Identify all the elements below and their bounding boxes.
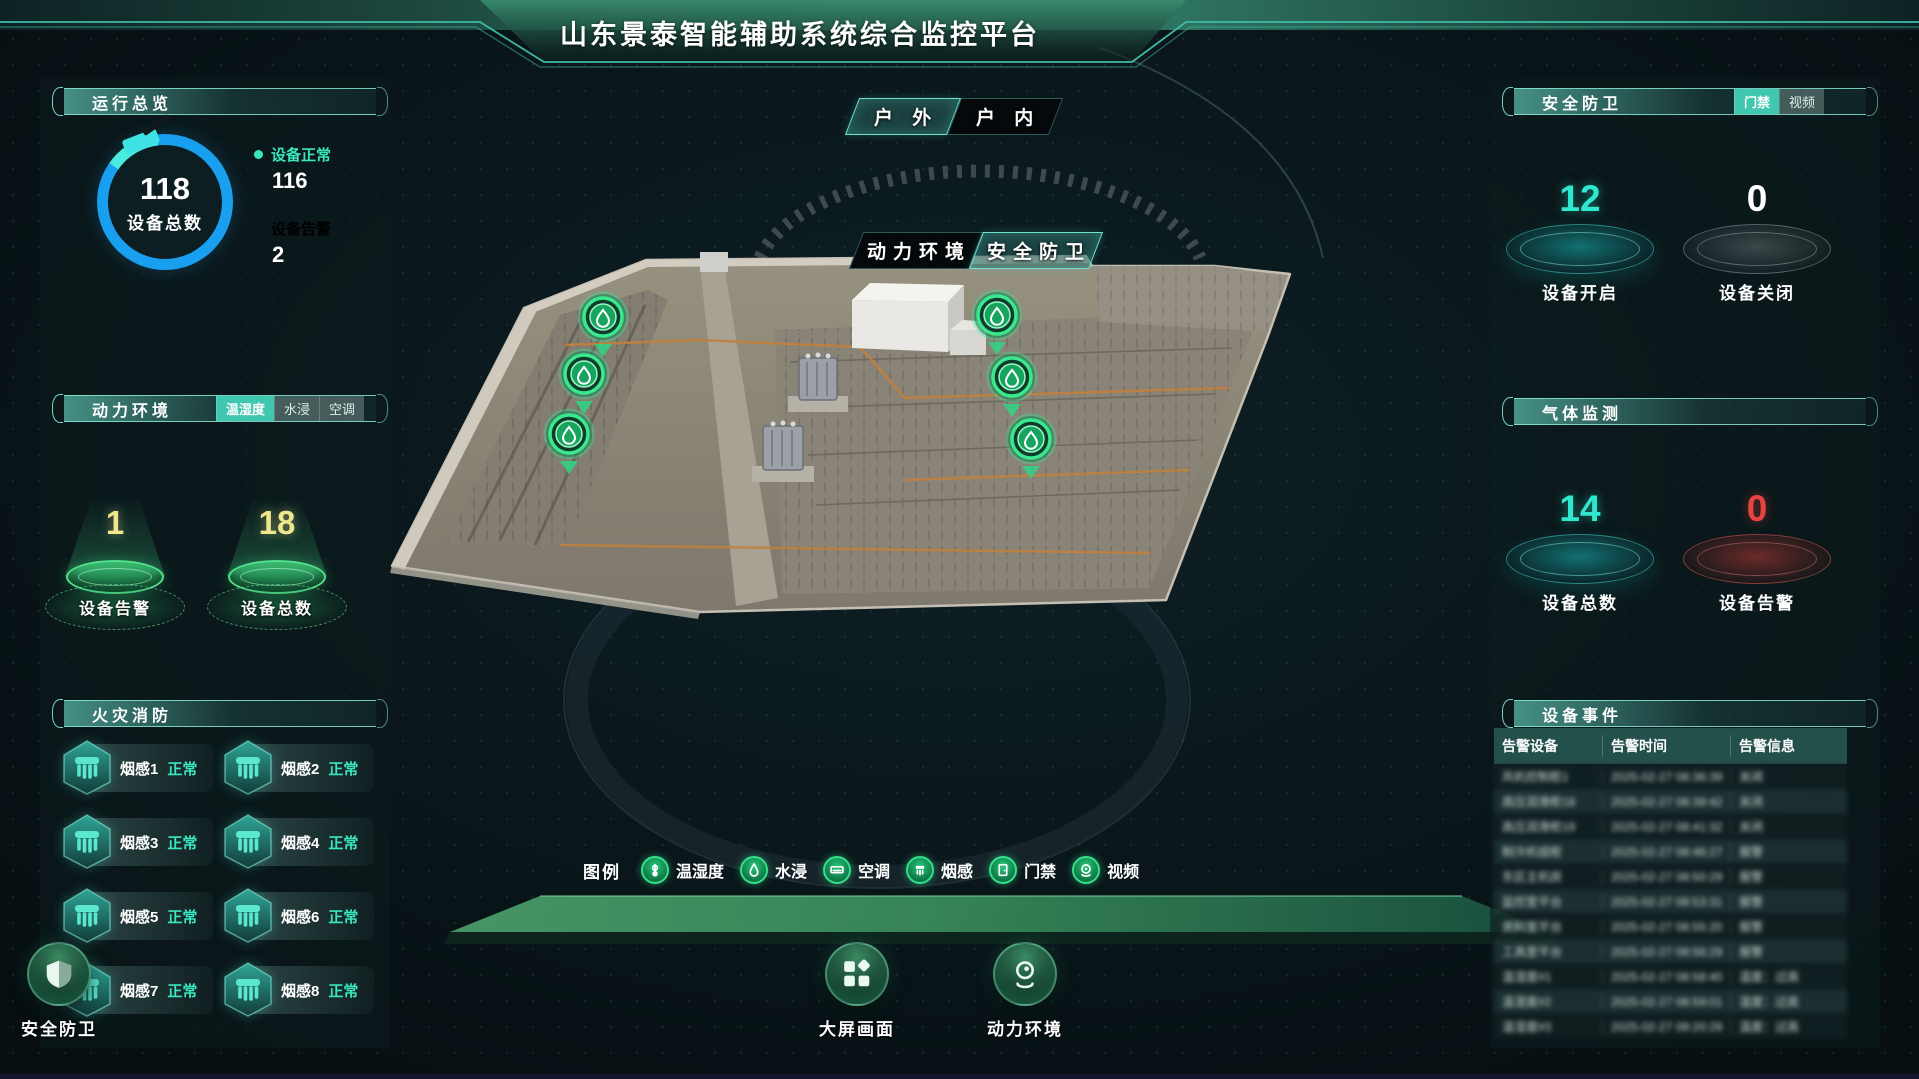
event-row[interactable]: 高压润滑柜19 2025-02-27 08:41:32 关闭 — [1494, 814, 1847, 839]
sensor-status: 正常 — [328, 906, 358, 927]
legend-items: 温湿度 — [641, 856, 1139, 884]
sensor-name: 烟感1 — [120, 758, 158, 779]
metric-disc: 0 设备关闭 — [1677, 178, 1837, 308]
gas-discs: 14 设备总数 0 设备告警 — [1500, 488, 1870, 618]
view-tab-label: 户 内 — [969, 103, 1040, 130]
device-total-label: 设备总数 — [127, 209, 203, 234]
event-info: 报警 — [1730, 868, 1847, 885]
legend-item-label: 烟感 — [941, 858, 973, 882]
event-info: 关闭 — [1730, 793, 1847, 810]
panel-title: 气体监测 — [1542, 400, 1622, 424]
event-device: 高压润滑柜18 — [1494, 793, 1602, 810]
event-row[interactable]: 制冷机组柜 2025-02-27 08:46:27 报警 — [1494, 839, 1847, 864]
smoke-sensor-item[interactable]: 烟感4 正常 — [219, 812, 374, 870]
dashboard: 山东景泰智能辅助系统综合监控平台 运行总览 118 设备总数 设备正常 — [0, 0, 1919, 1079]
disc-shape — [1683, 534, 1831, 584]
page-title: 山东景泰智能辅助系统综合监控平台 — [440, 13, 1160, 52]
event-time: 2025-02-27 08:41:32 — [1602, 820, 1730, 834]
metric-label: 设备关闭 — [1677, 279, 1837, 304]
metric-value: 14 — [1500, 488, 1660, 530]
stat-value: 2 — [272, 242, 331, 268]
nav-button-label: 动力环境 — [966, 1015, 1084, 1040]
nav-button[interactable]: 大屏画面 — [798, 942, 916, 1040]
event-device: 监控室平台 — [1494, 893, 1602, 910]
legend-item: 温湿度 — [641, 856, 724, 884]
stat-value: 116 — [272, 168, 331, 194]
panel-header-overview: 运行总览 — [64, 88, 376, 115]
event-device: 东区主机房 — [1494, 868, 1602, 885]
event-device: 制冷机组柜 — [1494, 843, 1602, 860]
panel-header-fire: 火灾消防 — [64, 700, 376, 727]
dashboard-grid-icon — [844, 959, 871, 987]
nav-button-label: 安全防卫 — [0, 1015, 118, 1040]
stat-label: 设备正常 — [271, 144, 331, 165]
metric-value: 12 — [1500, 178, 1660, 220]
legend-item-label: 温湿度 — [676, 858, 724, 882]
event-row[interactable]: 资料室平台 2025-02-27 08:55:20 报警 — [1494, 914, 1847, 939]
stat-dot-icon — [254, 224, 263, 233]
metric-value: 0 — [1677, 488, 1837, 530]
legend-item-label: 空调 — [858, 858, 890, 882]
metric-disc: 14 设备总数 — [1500, 488, 1660, 618]
panel-title: 运行总览 — [92, 90, 172, 114]
event-info: 关闭 — [1730, 818, 1847, 835]
security-tab[interactable]: 门禁 — [1734, 89, 1779, 114]
sensor-status: 正常 — [328, 758, 358, 779]
event-time: 2025-02-27 08:55:20 — [1602, 920, 1730, 934]
panel-header-power-env: 动力环境 温湿度 水浸 空调 — [64, 395, 376, 422]
smoke-detector-icon — [58, 738, 116, 796]
event-info: 报警 — [1730, 893, 1847, 910]
sensor-status: 正常 — [328, 832, 358, 853]
legend-item: 门禁 — [989, 856, 1056, 884]
power-env-pedestals: 18 设备总数 1 设备告警 — [40, 498, 390, 673]
smoke-detector-icon — [58, 812, 116, 870]
legend-item-label: 门禁 — [1024, 858, 1056, 882]
metric-label: 设备告警 — [1677, 589, 1837, 614]
power-env-tab[interactable]: 水浸 — [274, 396, 319, 421]
stat-item: 设备正常 116 — [254, 144, 331, 194]
right-panel-column: 安全防卫 门禁 视频 12 设备开启 0 — [1490, 78, 1880, 1048]
smoke-detector-icon — [58, 886, 116, 944]
pedestal-label: 设备告警 — [40, 595, 190, 619]
event-time: 2025-02-27 08:46:27 — [1602, 845, 1730, 859]
scene-mode-tab[interactable]: 安全防卫 — [969, 232, 1103, 269]
nav-button[interactable]: 动力环境 — [966, 942, 1084, 1040]
event-info: 关闭 — [1730, 768, 1847, 785]
panel-header-events: 设备事件 — [1514, 700, 1866, 727]
pedestal-value: 18 — [202, 504, 352, 542]
sensor-name: 烟感4 — [281, 832, 319, 853]
legend-platform — [444, 896, 1558, 944]
sensor-status: 正常 — [167, 906, 197, 927]
legend-item: 烟感 — [906, 856, 973, 884]
view-tab[interactable]: 户 外 — [845, 98, 961, 135]
event-row[interactable]: 风机控制柜1 2025-02-27 08:36:39 关闭 — [1494, 764, 1847, 789]
stat-item: 设备告警 2 — [254, 218, 331, 268]
event-row[interactable]: 监控室平台 2025-02-27 08:53:31 报警 — [1494, 889, 1847, 914]
metric-label: 设备开启 — [1500, 279, 1660, 304]
legend-item: 水浸 — [740, 856, 807, 884]
legend-title: 图例 — [583, 858, 621, 883]
view-tab-label: 户 外 — [867, 103, 938, 130]
scene-mode-tab-label: 安全防卫 — [980, 237, 1091, 264]
map-legend: 图例 — [583, 856, 1139, 884]
app-header: 山东景泰智能辅助系统综合监控平台 — [0, 0, 1919, 70]
device-total-gauge: 118 设备总数 — [97, 134, 233, 270]
power-env-tab[interactable]: 温湿度 — [216, 396, 274, 421]
legend-item-label: 水浸 — [775, 858, 807, 882]
outdoor-indoor-tabs: 户 外 户 内 — [852, 98, 1056, 135]
smoke-detector-icon — [219, 812, 277, 870]
security-tab[interactable]: 视频 — [1779, 89, 1824, 114]
legend-item: 视频 — [1072, 856, 1139, 884]
bottom-edge-strip — [0, 1074, 1919, 1079]
power-env-tabs: 温湿度 水浸 空调 — [216, 396, 364, 421]
device-total-value: 118 — [140, 171, 190, 207]
legend-item: 空调 — [823, 856, 890, 884]
panel-title: 安全防卫 — [1542, 90, 1622, 114]
scene-mode-tab-label: 动力环境 — [860, 237, 971, 264]
panel-header-security: 安全防卫 门禁 视频 — [1514, 88, 1866, 115]
column-header: 告警时间 — [1602, 735, 1730, 757]
event-info: 报警 — [1730, 843, 1847, 860]
event-time: 2025-02-27 08:50:29 — [1602, 870, 1730, 884]
smoke-detector-icon — [916, 866, 925, 875]
smoke-sensor-item[interactable]: 烟感3 正常 — [58, 812, 213, 870]
security-tabs: 门禁 视频 — [1734, 89, 1824, 114]
scene-mode-tab[interactable]: 动力环境 — [849, 232, 983, 269]
event-time: 2025-02-27 08:39:42 — [1602, 795, 1730, 809]
smoke-detector-icon — [219, 886, 277, 944]
pedestal: 18 设备总数 — [202, 498, 352, 668]
column-header: 告警设备 — [1494, 736, 1602, 756]
panel-title: 设备事件 — [1542, 702, 1622, 726]
metric-label: 设备总数 — [1500, 589, 1660, 614]
nav-button[interactable]: 安全防卫 — [0, 942, 118, 1040]
smoke-sensor-item[interactable]: 烟感2 正常 — [219, 738, 374, 796]
sensor-name: 烟感6 — [281, 906, 319, 927]
legend-item-label: 视频 — [1107, 858, 1139, 882]
sensor-name: 烟感2 — [281, 758, 319, 779]
disc-shape — [1683, 224, 1831, 274]
smoke-sensor-item[interactable]: 烟感5 正常 — [58, 886, 213, 944]
thermometer-icon — [652, 865, 658, 877]
swoosh-line — [1100, 48, 1323, 258]
overview-stats: 设备正常 116 设备告警 2 — [254, 144, 331, 292]
smoke-sensor-item[interactable]: 烟感1 正常 — [58, 738, 213, 796]
event-device: 资料室平台 — [1494, 918, 1602, 935]
sensor-status: 正常 — [167, 832, 197, 853]
shield-icon — [47, 961, 72, 988]
door-access-icon — [999, 865, 1006, 876]
smoke-sensor-item[interactable]: 烟感6 正常 — [219, 886, 374, 944]
webcam-icon — [1017, 963, 1032, 987]
sensor-name: 烟感5 — [120, 906, 158, 927]
stat-dot-icon — [254, 150, 263, 159]
metric-disc: 0 设备告警 — [1677, 488, 1837, 618]
water-drop-icon — [750, 864, 757, 876]
disc-shape — [1506, 534, 1654, 584]
power-env-tab[interactable]: 空调 — [319, 396, 364, 421]
event-row[interactable]: 东区主机房 2025-02-27 08:50:29 报警 — [1494, 864, 1847, 889]
event-time: 2025-02-27 08:53:31 — [1602, 895, 1730, 909]
events-table-header: 告警设备 告警时间 告警信息 — [1494, 728, 1847, 764]
disc-shape — [1506, 224, 1654, 274]
substation-ground — [390, 252, 1290, 619]
view-tab[interactable]: 户 内 — [947, 98, 1063, 135]
pedestal-value: 1 — [40, 504, 190, 542]
panel-header-gas: 气体监测 — [1514, 398, 1866, 425]
video-camera-icon — [1082, 865, 1090, 876]
panel-title: 火灾消防 — [92, 702, 172, 726]
event-row[interactable]: 高压润滑柜18 2025-02-27 08:39:42 关闭 — [1494, 789, 1847, 814]
event-info: 报警 — [1730, 918, 1847, 935]
panel-title: 动力环境 — [92, 397, 172, 421]
metric-value: 0 — [1677, 178, 1837, 220]
smoke-detector-icon — [219, 738, 277, 796]
bottom-nav: 大屏画面 动力环境 — [0, 942, 1919, 1052]
metric-disc: 12 设备开启 — [1500, 178, 1660, 308]
pedestal-label: 设备总数 — [202, 595, 352, 619]
pedestal: 1 设备告警 — [40, 498, 190, 668]
sensor-status: 正常 — [167, 758, 197, 779]
left-panel-column: 运行总览 118 设备总数 设备正常 116 — [40, 78, 390, 1048]
event-device: 风机控制柜1 — [1494, 768, 1602, 785]
scene-mode-tabs: 动力环境 安全防卫 — [856, 232, 1096, 269]
security-discs: 12 设备开启 0 设备关闭 — [1500, 178, 1870, 308]
event-time: 2025-02-27 08:36:39 — [1602, 770, 1730, 784]
event-device: 高压润滑柜19 — [1494, 818, 1602, 835]
sensor-name: 烟感3 — [120, 832, 158, 853]
air-conditioner-icon — [831, 867, 843, 873]
column-header: 告警信息 — [1730, 735, 1847, 757]
nav-button-label: 大屏画面 — [798, 1015, 916, 1040]
stat-label: 设备告警 — [271, 218, 331, 239]
